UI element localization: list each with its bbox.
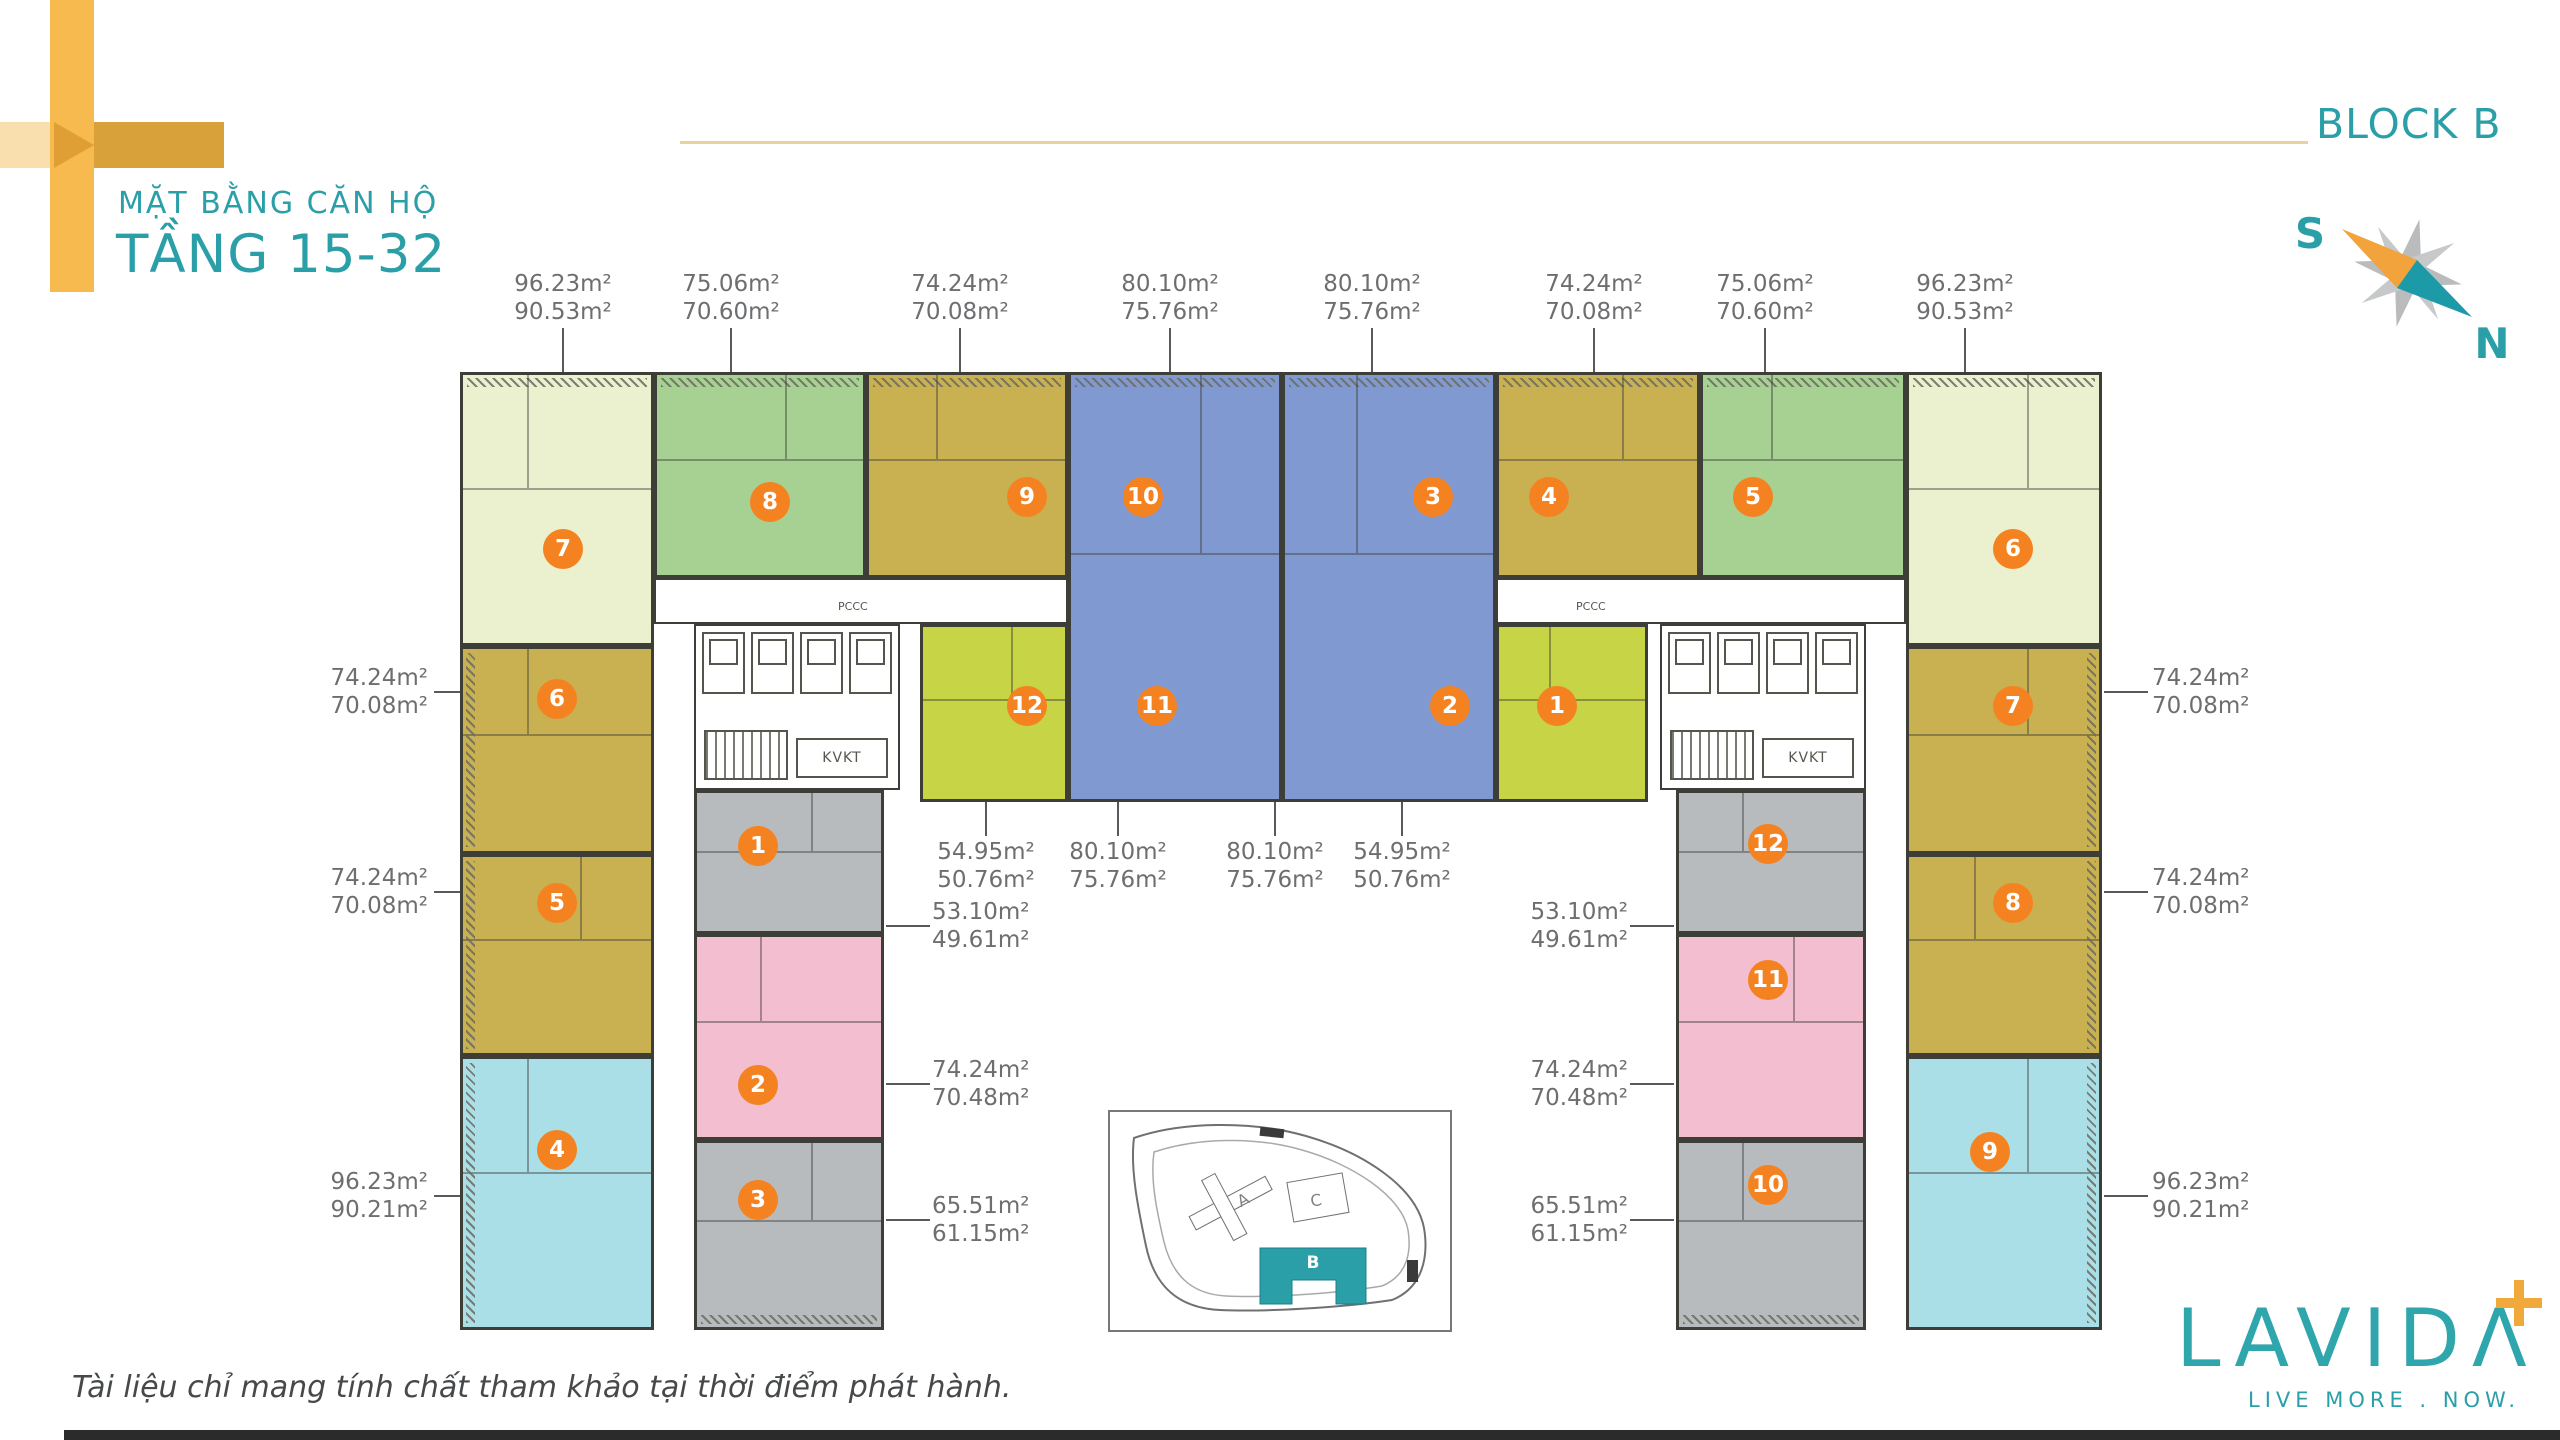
unit-7-corner-top-left <box>460 372 654 646</box>
unit-10-11-block <box>1068 372 1282 802</box>
unit-12-inner <box>920 624 1068 802</box>
pccc-label: PCCC <box>1576 600 1606 613</box>
unit-badge: 6 <box>537 679 577 719</box>
leader-line <box>2104 691 2148 693</box>
compass-icon: S N <box>2270 182 2530 372</box>
area-label: 74.24m²70.48m² <box>932 1056 1052 1112</box>
unit-badge: 3 <box>738 1180 778 1220</box>
unit-badge: 3 <box>1413 477 1453 517</box>
area-label: 74.24m²70.08m² <box>300 864 428 920</box>
elevator-shafts <box>702 632 892 694</box>
area-label: 54.95m²50.76m² <box>916 838 1056 894</box>
unit-3-col-left <box>694 1140 884 1330</box>
area-label: 53.10m²49.61m² <box>932 898 1052 954</box>
unit-badge: 8 <box>1993 883 2033 923</box>
elevator-core-right: KVKT <box>1660 624 1866 790</box>
leader-line <box>1630 925 1674 927</box>
kvkt-room-label: KVKT <box>796 738 888 778</box>
compass-south-label: S <box>2295 209 2325 258</box>
site-key-map: A C B <box>1108 1110 1452 1332</box>
area-label: 54.95m²50.76m² <box>1332 838 1472 894</box>
header-divider-line <box>680 141 2308 144</box>
unit-badge: 8 <box>750 482 790 522</box>
bottom-edge-bar <box>64 1430 2560 1440</box>
area-label: 74.24m²70.08m² <box>2152 864 2280 920</box>
leader-line <box>1630 1083 1674 1085</box>
unit-5-top <box>1700 372 1906 578</box>
leader-line <box>2104 1195 2148 1197</box>
leader-line <box>730 328 732 372</box>
lavida-logo: LAVIDΛ <box>2176 1292 2539 1385</box>
leader-line <box>1274 802 1276 836</box>
page-title: TẦNG 15-32 <box>116 224 446 285</box>
leader-line <box>1964 328 1966 372</box>
leader-line <box>562 328 564 372</box>
unit-4-wing-left <box>460 1056 654 1330</box>
area-label: 96.23m²90.53m² <box>1895 270 2035 326</box>
unit-badge: 1 <box>1537 686 1577 726</box>
corridor-right <box>1496 578 1906 624</box>
leader-line <box>1117 802 1119 836</box>
unit-badge: 9 <box>1970 1132 2010 1172</box>
area-label: 75.06m²70.60m² <box>661 270 801 326</box>
lavida-plus-icon <box>2496 1280 2542 1326</box>
area-label: 80.10m²75.76m² <box>1100 270 1240 326</box>
area-label: 65.51m²61.15m² <box>1508 1192 1628 1248</box>
page-subtitle: MẶT BẰNG CĂN HỘ <box>118 186 438 221</box>
unit-badge: 4 <box>1529 477 1569 517</box>
leader-line <box>1169 328 1171 372</box>
unit-badge: 7 <box>543 529 583 569</box>
building-a-outline <box>1177 1153 1285 1253</box>
disclaimer-text: Tài liệu chỉ mang tính chất tham khảo tạ… <box>72 1370 1011 1405</box>
compass-north-label: N <box>2474 319 2509 368</box>
unit-badge: 10 <box>1748 1165 1788 1205</box>
unit-6-corner-top-right <box>1906 372 2102 646</box>
leader-line <box>434 1195 460 1197</box>
logo-tagline: LIVE MORE . NOW. <box>2248 1388 2520 1412</box>
area-label: 96.23m²90.21m² <box>300 1168 428 1224</box>
leader-line <box>959 328 961 372</box>
area-label: 74.24m²70.08m² <box>1524 270 1664 326</box>
leader-line <box>1371 328 1373 372</box>
block-label: BLOCK B <box>2316 100 2501 148</box>
unit-badge: 5 <box>1733 477 1773 517</box>
area-label: 74.24m²70.08m² <box>300 664 428 720</box>
unit-badge: 12 <box>1007 686 1047 726</box>
leader-line <box>434 891 460 893</box>
unit-1-col-left <box>694 790 884 934</box>
area-label: 74.24m²70.08m² <box>890 270 1030 326</box>
leader-line <box>1401 802 1403 836</box>
stairs <box>1670 730 1754 780</box>
area-label: 53.10m²49.61m² <box>1508 898 1628 954</box>
unit-badge: 2 <box>738 1065 778 1105</box>
area-label: 96.23m²90.53m² <box>493 270 633 326</box>
area-label: 75.06m²70.60m² <box>1695 270 1835 326</box>
unit-8-top <box>654 372 866 578</box>
leader-line <box>985 802 987 836</box>
unit-badge: 12 <box>1748 824 1788 864</box>
leader-line <box>886 1083 930 1085</box>
unit-badge: 5 <box>537 883 577 923</box>
elevator-shafts <box>1668 632 1858 694</box>
unit-2-col-left <box>694 934 884 1140</box>
unit-badge: 4 <box>537 1130 577 1170</box>
site-map-block-b-label: B <box>1307 1253 1320 1273</box>
kvkt-room-label: KVKT <box>1762 738 1854 778</box>
unit-9-wing-right <box>1906 1056 2102 1330</box>
area-label: 80.10m²75.76m² <box>1302 270 1442 326</box>
area-label: 74.24m²70.08m² <box>2152 664 2280 720</box>
leader-line <box>2104 891 2148 893</box>
unit-badge: 6 <box>1993 529 2033 569</box>
leader-line <box>1764 328 1766 372</box>
area-label: 65.51m²61.15m² <box>932 1192 1052 1248</box>
unit-badge: 1 <box>738 826 778 866</box>
unit-9-top <box>866 372 1068 578</box>
unit-4-top <box>1496 372 1700 578</box>
leader-line <box>1630 1219 1674 1221</box>
area-label: 74.24m²70.48m² <box>1508 1056 1628 1112</box>
leader-line <box>434 691 460 693</box>
stairs <box>704 730 788 780</box>
unit-badge: 9 <box>1007 477 1047 517</box>
unit-7-wing-right <box>1906 646 2102 854</box>
floorplan-page: MẶT BẰNG CĂN HỘ TẦNG 15-32 BLOCK B S N K… <box>0 0 2560 1440</box>
area-label: 96.23m²90.21m² <box>2152 1168 2280 1224</box>
unit-badge: 2 <box>1430 686 1470 726</box>
leader-line <box>886 925 930 927</box>
site-map-drawing: A C B <box>1110 1112 1450 1330</box>
elevator-core-left: KVKT <box>694 624 900 790</box>
area-label: 80.10m²75.76m² <box>1205 838 1345 894</box>
unit-badge: 11 <box>1137 686 1177 726</box>
unit-badge: 11 <box>1748 960 1788 1000</box>
area-label: 80.10m²75.76m² <box>1048 838 1188 894</box>
unit-3-2-block <box>1282 372 1496 802</box>
unit-badge: 10 <box>1123 477 1163 517</box>
leader-line <box>886 1219 930 1221</box>
leader-line <box>1593 328 1595 372</box>
unit-6-wing-left <box>460 646 654 854</box>
unit-badge: 7 <box>1993 686 2033 726</box>
pccc-label: PCCC <box>838 600 868 613</box>
